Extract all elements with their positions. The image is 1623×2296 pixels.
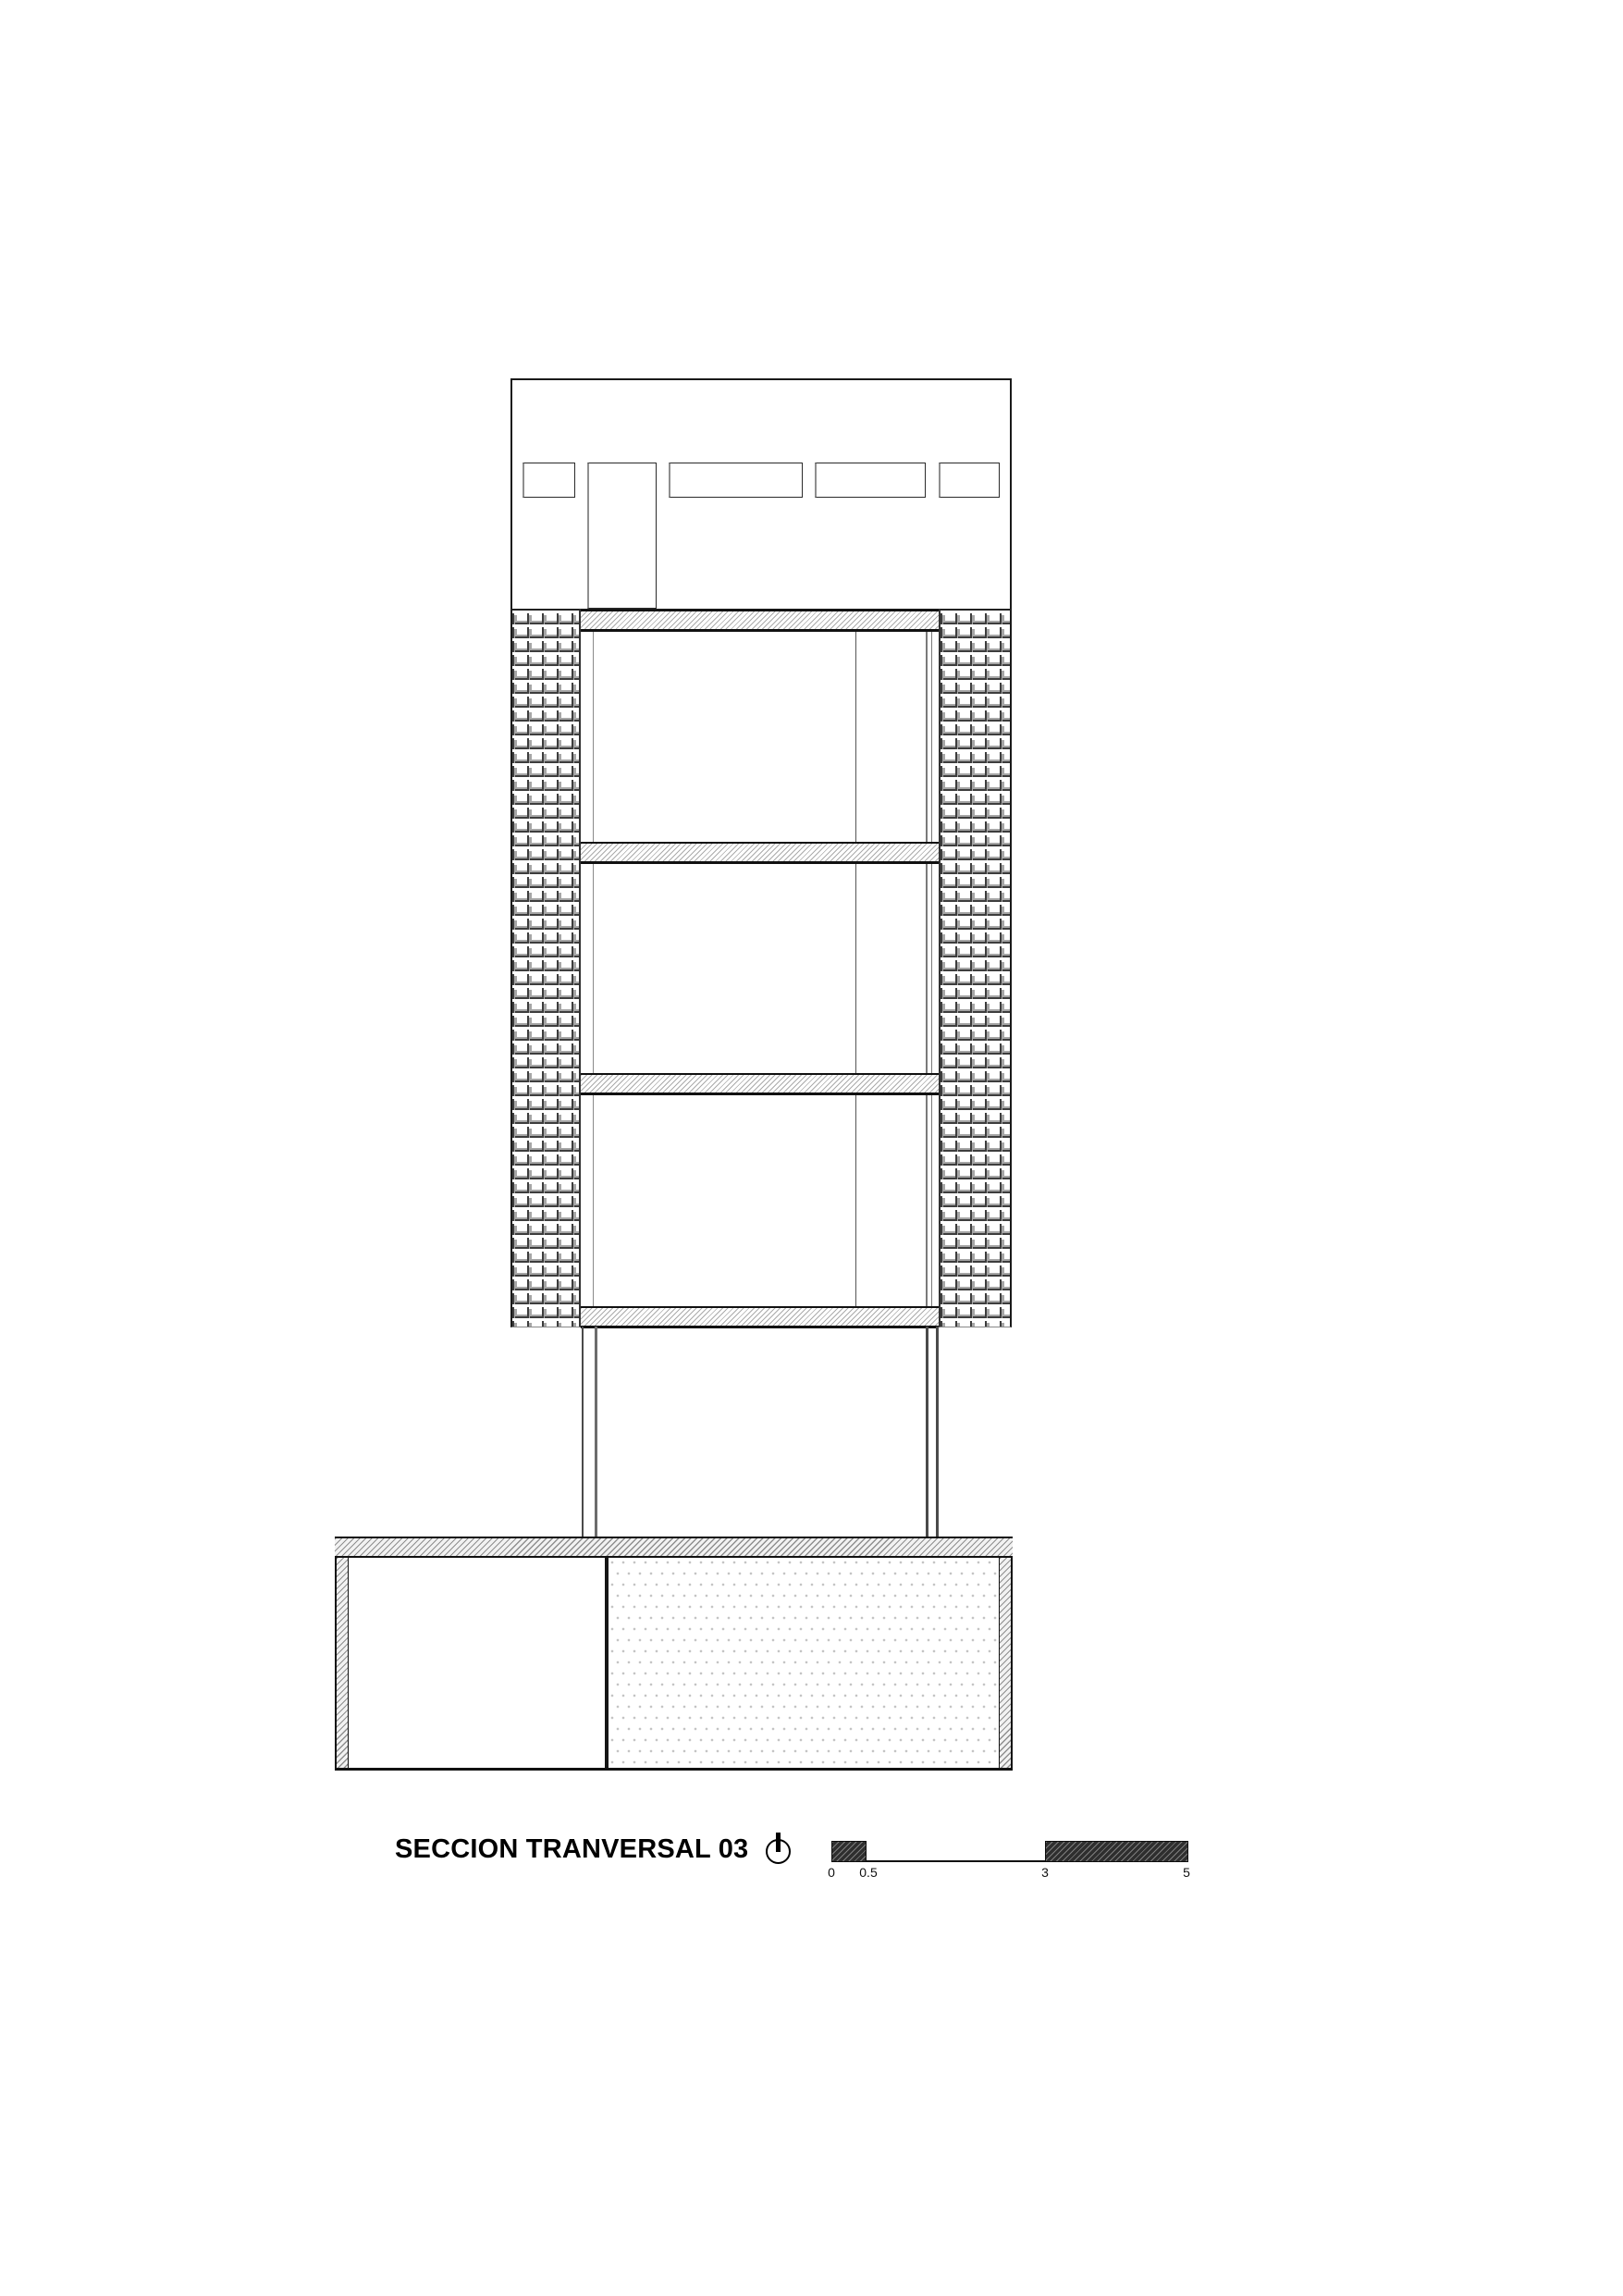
interior-shaft-line-a [926, 632, 928, 1306]
masonry-wall-right [939, 609, 1012, 1327]
foundation-slab [335, 1537, 1013, 1558]
roof-opening-3 [815, 463, 926, 498]
basement-wall-right [999, 1558, 1013, 1770]
basement-wall-left [335, 1558, 349, 1770]
roof-opening-4 [939, 463, 1000, 498]
scale-label-3: 3 [1041, 1865, 1049, 1880]
basement-fill-dotted [609, 1558, 999, 1768]
scale-bar-segment-2 [1045, 1841, 1188, 1862]
roof-volume-outline [510, 378, 1012, 611]
column-left-b [595, 1327, 597, 1537]
scale-label-0-5: 0.5 [859, 1865, 877, 1880]
interior-partition-line [855, 632, 856, 1306]
column-right-a [926, 1327, 928, 1537]
basement-floor-line [335, 1768, 1013, 1771]
interior-shaft-line-b [931, 632, 933, 1306]
drawing-title: SECCION TRANVERSAL 03 [395, 1834, 748, 1865]
floor-slab-4 [581, 1306, 939, 1328]
scale-label-5: 5 [1183, 1865, 1190, 1880]
roof-opening-2 [669, 463, 803, 498]
column-left-a [582, 1327, 584, 1537]
section-drawing-sheet: SECCION TRANVERSAL 03 0 0.5 3 5 [0, 0, 1623, 2296]
masonry-wall-left [510, 609, 581, 1327]
roof-shaft [587, 463, 657, 609]
interior-wall-line-left [593, 632, 594, 1306]
basement-partition [605, 1558, 609, 1770]
floor-slab-3 [581, 1073, 939, 1095]
scale-bar-segment-1 [831, 1841, 867, 1862]
roof-opening-1 [523, 463, 575, 498]
north-arrow-needle [776, 1833, 781, 1852]
floor-slab-2 [581, 842, 939, 864]
scale-label-0: 0 [828, 1865, 835, 1880]
floor-slab-1 [581, 610, 939, 632]
column-right-b [936, 1327, 939, 1537]
